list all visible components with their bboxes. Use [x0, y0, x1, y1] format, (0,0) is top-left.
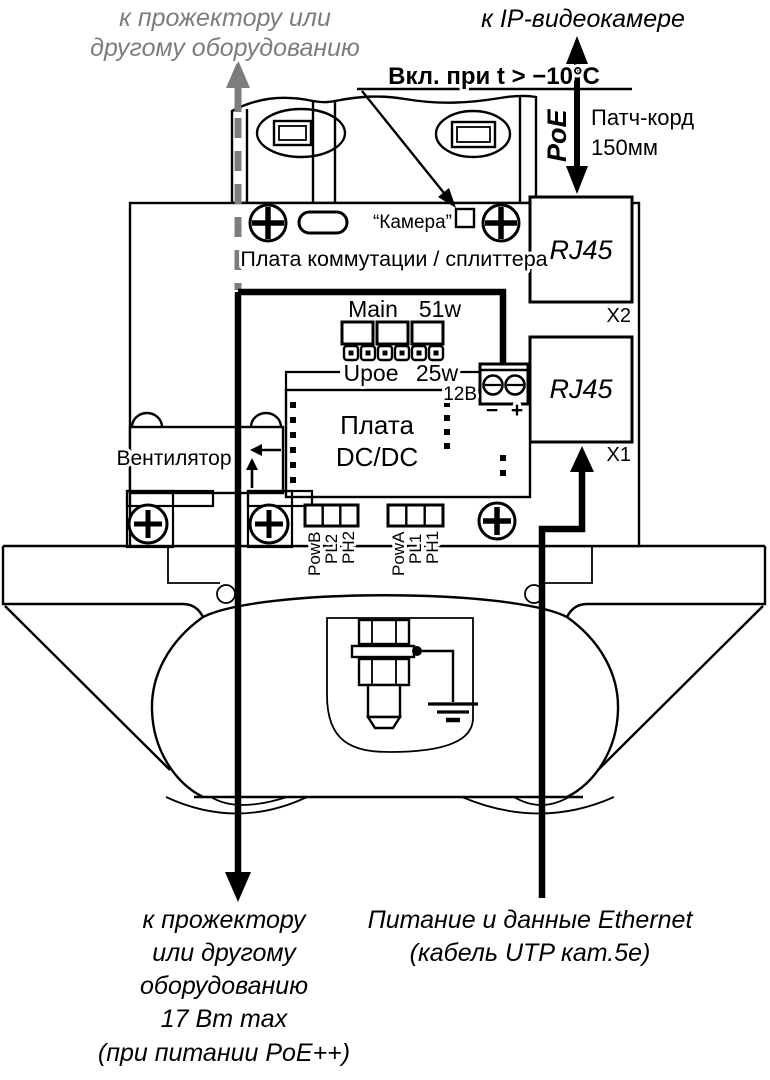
- jumper-main-label: Main: [348, 296, 398, 322]
- bracket-notch-left: [168, 547, 220, 583]
- cable-gland-right: [462, 797, 614, 814]
- wiring-diagram-page: к прожектору или другому оборудованию к …: [0, 0, 770, 1080]
- floodlight-bottom-label: к прожектору или другому оборудованию 17…: [98, 906, 350, 1067]
- patch-cord-label-line1: Патч-корд: [591, 105, 694, 130]
- patch-cord-label-line2: 150мм: [591, 135, 658, 160]
- bottom-connector-left: [305, 505, 358, 526]
- floodlight-top-label-line1: к прожектору или: [119, 4, 331, 32]
- poe-label: PoE: [542, 108, 572, 162]
- svg-text:(кабель UTP кат.5е): (кабель UTP кат.5е): [410, 939, 651, 967]
- svg-text:(при питании PoE++): (при питании PoE++): [98, 1039, 350, 1067]
- screw: [250, 205, 286, 241]
- jumper-upoe-power: 25w: [416, 360, 459, 386]
- wiring-diagram: к прожектору или другому оборудованию к …: [0, 0, 770, 1080]
- bottom-connector-right: [388, 505, 443, 526]
- hinge-pivot-left: [217, 585, 235, 603]
- terminal-minus: −: [486, 399, 498, 422]
- fan-label: Вентилятор: [117, 447, 232, 470]
- splitter-board-title: Плата коммутации / сплиттера: [240, 247, 547, 271]
- x2-designator: X2: [607, 305, 631, 327]
- ground-contact-point: [412, 646, 422, 656]
- ethernet-bottom-label: Питание и данные Ethernet (кабель UTP ка…: [368, 906, 694, 967]
- terminal-plus: +: [511, 399, 523, 422]
- screw: [483, 205, 519, 241]
- dcdc-board-label-line2: DC/DC: [336, 442, 418, 472]
- floodlight-top-label-line2: другому оборудованию: [90, 34, 360, 62]
- pin-label-ph2: PH2: [339, 531, 358, 564]
- svg-text:оборудованию: оборудованию: [140, 972, 308, 1000]
- camera-jumper-label: “Камера”: [373, 212, 452, 233]
- top-cover: [232, 96, 536, 203]
- x1-designator: X1: [607, 444, 631, 466]
- jumper-blocks: [342, 322, 443, 360]
- svg-text:Питание и данные Ethernet: Питание и данные Ethernet: [368, 906, 694, 934]
- camera-jumper-square: [456, 209, 474, 227]
- down-arrow: [225, 872, 251, 902]
- pin-label-ph1: PH1: [423, 531, 442, 564]
- rj45-x2-label: RJ45: [549, 235, 613, 265]
- svg-text:17 Вт max: 17 Вт max: [161, 1005, 289, 1033]
- up-arrow-gray: [226, 60, 250, 88]
- heater-note: Вкл. при t > −10°C: [388, 63, 600, 90]
- svg-text:или другому: или другому: [152, 939, 297, 967]
- dc-output-terminal: [480, 364, 528, 404]
- svg-text:к прожектору: к прожектору: [143, 906, 307, 934]
- camera-label: к IP-видеокамере: [481, 5, 685, 33]
- jumper-main-power: 51w: [419, 296, 462, 322]
- rj45-x1-label: RJ45: [549, 374, 613, 404]
- dcdc-board-label-line1: Плата: [340, 410, 414, 440]
- bracket-notch-right: [540, 547, 592, 583]
- jumper-upoe-label: Upoe: [344, 360, 399, 386]
- screw: [479, 503, 515, 539]
- terminal-voltage-label: 12В: [443, 384, 477, 405]
- dome-top: [203, 595, 567, 617]
- camera-housing: [3, 546, 765, 814]
